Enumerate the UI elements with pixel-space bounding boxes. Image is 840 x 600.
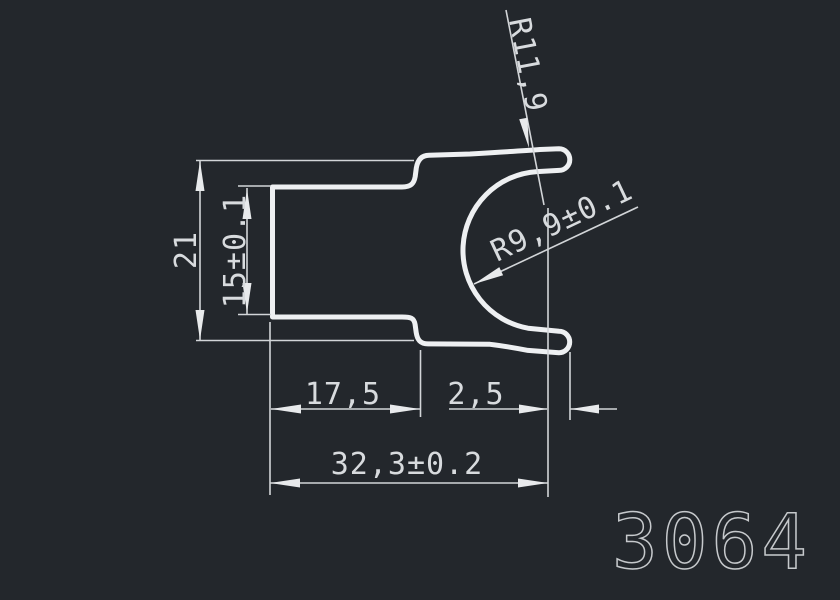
arrow-32-3-left	[270, 479, 300, 488]
arrow-2-5-left	[519, 405, 548, 414]
arrow-21-top	[196, 161, 205, 191]
part-number: 3064	[612, 497, 811, 586]
arrow-17-5-left	[271, 405, 301, 414]
dim-label-outer-height: 21	[169, 231, 204, 269]
dim-label-total-width: 32,3±0.2	[331, 447, 484, 482]
arrow-2-5-right	[571, 405, 600, 414]
arrow-17-5-right	[390, 405, 420, 414]
arrow-32-3-right	[518, 479, 548, 488]
cad-drawing-canvas: 21 15±0.1 R11,9 R9,9±0.1 17,5 2,5 32,3±0…	[0, 0, 840, 600]
arrow-r9-9	[474, 267, 503, 284]
arrow-21-bottom	[196, 310, 205, 340]
profile-drawing: 21 15±0.1 R11,9 R9,9±0.1 17,5 2,5 32,3±0…	[0, 0, 840, 600]
dim-label-left-width: 17,5	[305, 377, 381, 412]
dim-label-inner-height: 15±0.1	[218, 194, 253, 308]
dim-label-tip-thickness: 2,5	[447, 377, 504, 412]
arrow-r11-9	[519, 118, 529, 148]
dim-label-outer-radius: R11,9	[501, 15, 554, 115]
dimension-lines	[200, 10, 638, 483]
dim-label-inner-radius: R9,9±0.1	[486, 173, 639, 270]
